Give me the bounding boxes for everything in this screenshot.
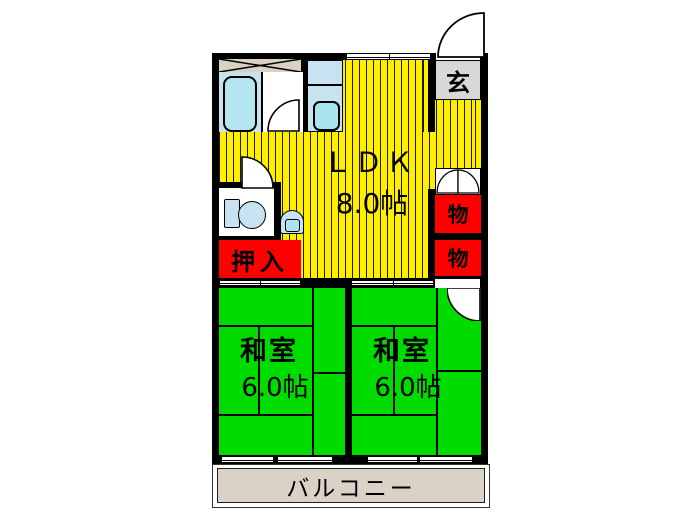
hatch-strip xyxy=(219,59,301,72)
washitsu-left-room: 和室 6.0帖 xyxy=(219,288,345,455)
right-room-door-opening xyxy=(435,279,480,288)
hatch-x-icon xyxy=(219,59,301,72)
kitchen-counter-divider xyxy=(308,84,342,86)
window-top xyxy=(347,53,430,60)
fusuma-door-left xyxy=(220,280,300,286)
balcony: バルコニー xyxy=(212,464,490,508)
washitsu-left-label: 和室 xyxy=(219,330,319,366)
toilet-icon xyxy=(238,201,266,229)
balcony-label: バルコニー xyxy=(286,469,416,503)
window-balcony-3 xyxy=(368,456,417,463)
ldk-size-label: 8.0帖 xyxy=(297,181,447,223)
oshiire-label: 押入 xyxy=(231,242,289,277)
entrance-label: 玄 xyxy=(446,63,470,98)
window-balcony-1 xyxy=(222,456,273,463)
tatami-line xyxy=(219,325,314,327)
balcony-floor: バルコニー xyxy=(217,468,485,503)
oshiire-closet: 押入 xyxy=(219,240,301,278)
window-balcony-4 xyxy=(420,456,472,463)
storage-upper-label: 物 xyxy=(448,199,469,229)
ldk-label: ＬＤＫ xyxy=(300,141,440,181)
tatami-line xyxy=(219,414,314,416)
washitsu-right-room: 和室 6.0帖 xyxy=(352,288,481,455)
fusuma-door-right xyxy=(352,280,433,286)
tatami-line xyxy=(352,414,438,416)
washitsu-right-label: 和室 xyxy=(352,330,452,366)
tatami-line xyxy=(352,325,438,327)
bathroom-door-arc-icon xyxy=(266,98,301,132)
storage-lower-label: 物 xyxy=(448,243,469,273)
entrance-genkan: 玄 xyxy=(435,60,481,100)
window-balcony-2 xyxy=(278,456,332,463)
washitsu-right-size: 6.0帖 xyxy=(352,368,464,402)
toilet-door-arc-icon xyxy=(240,156,274,189)
floorplan-canvas: 玄 物 物 押入 ＬＤＫ xyxy=(0,0,700,525)
entrance-corridor-floor xyxy=(435,100,481,170)
entrance-door-arc-icon xyxy=(434,11,488,60)
storage-lower: 物 xyxy=(435,240,481,276)
kitchen-sink-icon xyxy=(313,101,340,131)
bathtub-icon xyxy=(223,76,257,132)
washitsu-left-size: 6.0帖 xyxy=(219,368,331,402)
toilet-room xyxy=(219,188,274,236)
ldk-floor-top xyxy=(343,60,428,132)
floorplan-outline: 玄 物 物 押入 ＬＤＫ xyxy=(212,53,488,465)
room-door-arc-icon xyxy=(447,288,481,321)
kitchen-counter xyxy=(307,60,343,132)
